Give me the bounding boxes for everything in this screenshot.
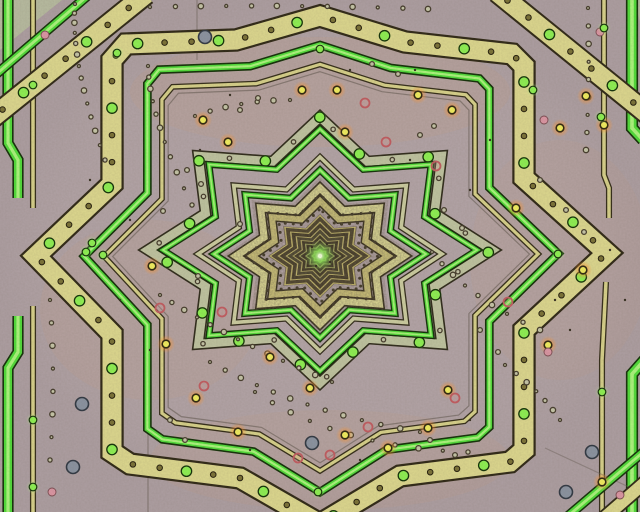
fractal-star-image bbox=[0, 0, 640, 512]
film-grain-overlay bbox=[0, 0, 640, 512]
fractal-canvas bbox=[0, 0, 640, 512]
